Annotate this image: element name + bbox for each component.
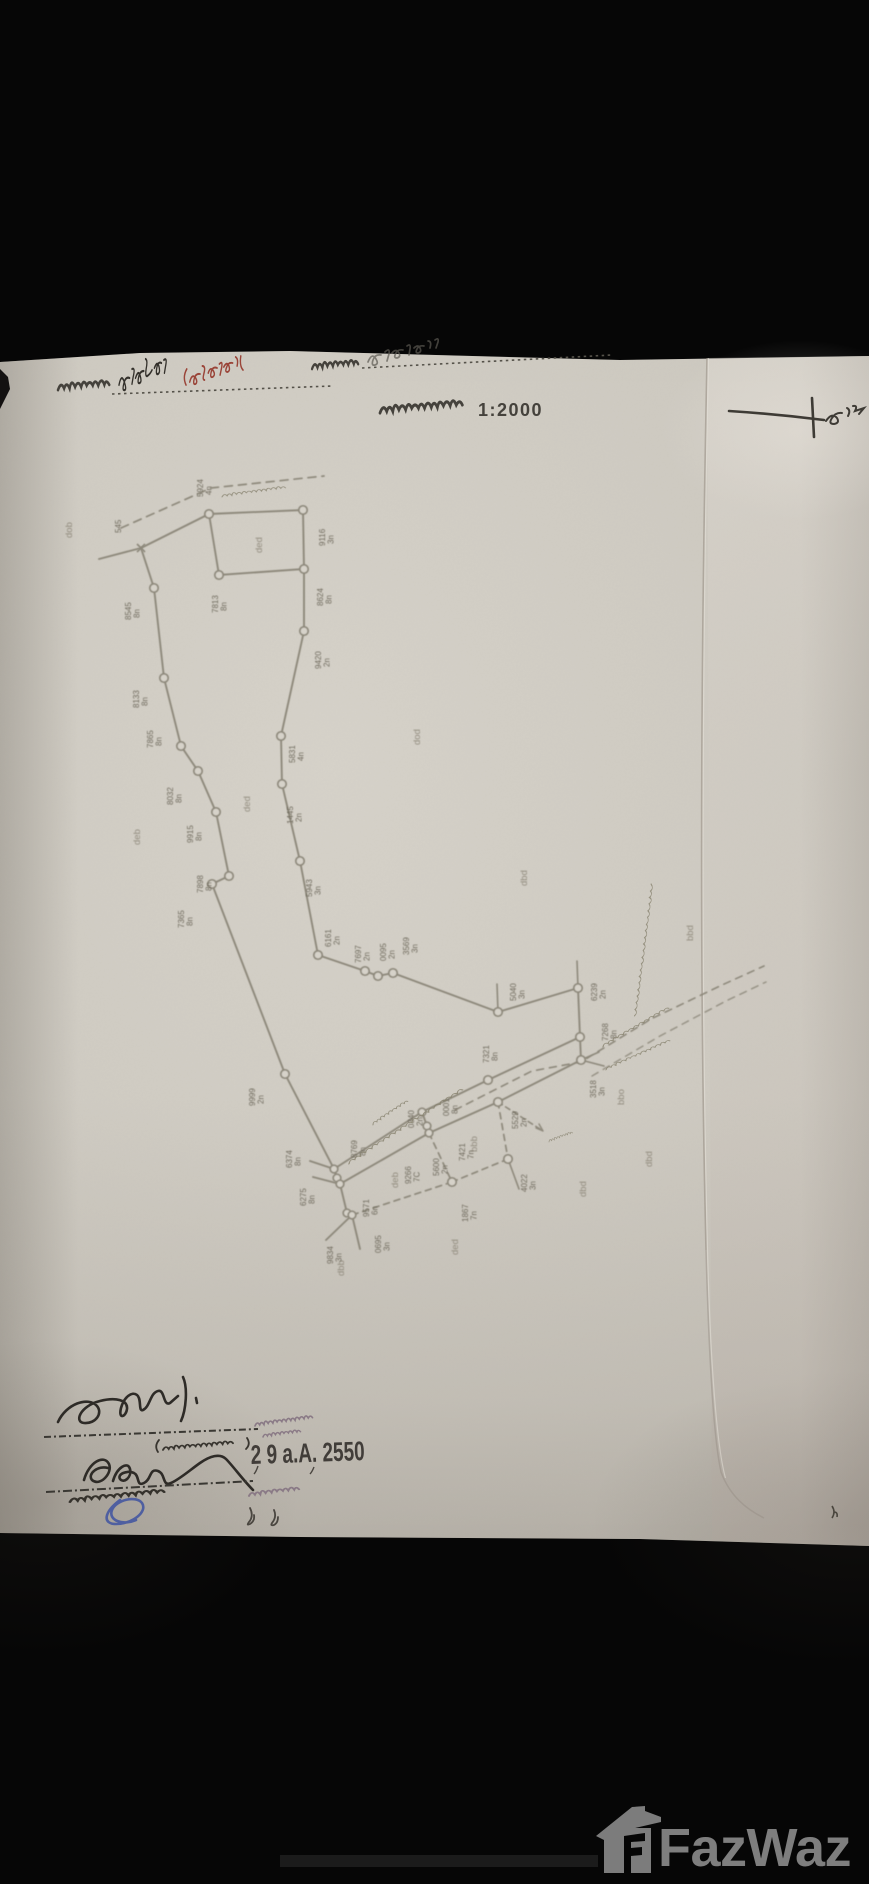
svg-text:8n: 8n (294, 1157, 303, 1166)
svg-text:2n: 2n (520, 1118, 529, 1127)
svg-text:ded: ded (254, 537, 265, 553)
svg-text:545: 545 (114, 519, 123, 533)
svg-text:8n: 8n (155, 737, 164, 746)
svg-text:dbd: dbd (644, 1151, 655, 1167)
svg-text:8n: 8n (220, 602, 229, 611)
svg-text:bbb: bbb (469, 1136, 480, 1152)
svg-text:3n: 3n (598, 1087, 607, 1096)
svg-text:dbd: dbd (519, 870, 530, 886)
svg-text:dob: dob (64, 522, 75, 538)
svg-text:ded: ded (450, 1239, 461, 1255)
svg-text:8n: 8n (186, 917, 195, 926)
svg-text:2n: 2n (295, 813, 304, 822)
svg-text:8n: 8n (451, 1105, 460, 1114)
svg-text:2n: 2n (388, 950, 397, 959)
svg-text:3n: 3n (411, 944, 420, 953)
svg-text:2n: 2n (257, 1095, 266, 1104)
svg-text:8n: 8n (308, 1195, 317, 1204)
svg-text:dbb: dbb (336, 1260, 347, 1276)
svg-text:bbo: bbo (616, 1089, 627, 1105)
svg-text:4n: 4n (297, 752, 306, 761)
svg-text:2n: 2n (363, 952, 372, 961)
svg-text:3n: 3n (518, 990, 527, 999)
svg-text:6n: 6n (371, 1206, 380, 1215)
svg-text:deb: deb (390, 1172, 401, 1188)
svg-text:deb: deb (132, 829, 143, 845)
svg-text:bbd: bbd (685, 925, 696, 941)
svg-text:2n: 2n (599, 990, 608, 999)
svg-text:7n: 7n (470, 1211, 479, 1220)
svg-text:8n: 8n (205, 882, 214, 891)
svg-text:8n: 8n (133, 609, 142, 618)
svg-text:FazWaz: FazWaz (658, 1818, 851, 1878)
svg-text:3n: 3n (529, 1181, 538, 1190)
svg-text:8n: 8n (195, 832, 204, 841)
svg-text:8n: 8n (491, 1052, 500, 1061)
svg-text:8n: 8n (141, 697, 150, 706)
svg-text:dod: dod (412, 729, 423, 745)
svg-text:8n: 8n (175, 794, 184, 803)
svg-text:7C: 7C (413, 1172, 422, 1182)
svg-text:1:2000: 1:2000 (478, 400, 543, 420)
svg-text:3n: 3n (314, 886, 323, 895)
svg-text:ded: ded (242, 796, 253, 812)
svg-text:2n: 2n (441, 1165, 450, 1174)
svg-text:2 9 a.A. 2550: 2 9 a.A. 2550 (250, 1436, 365, 1470)
svg-text:dbd: dbd (578, 1181, 589, 1197)
svg-text:4n: 4n (205, 486, 214, 495)
svg-text:2n: 2n (333, 936, 342, 945)
svg-text:2n: 2n (323, 658, 332, 667)
svg-text:3n: 3n (327, 535, 336, 544)
svg-text:8n: 8n (325, 595, 334, 604)
svg-text:3n: 3n (383, 1242, 392, 1251)
